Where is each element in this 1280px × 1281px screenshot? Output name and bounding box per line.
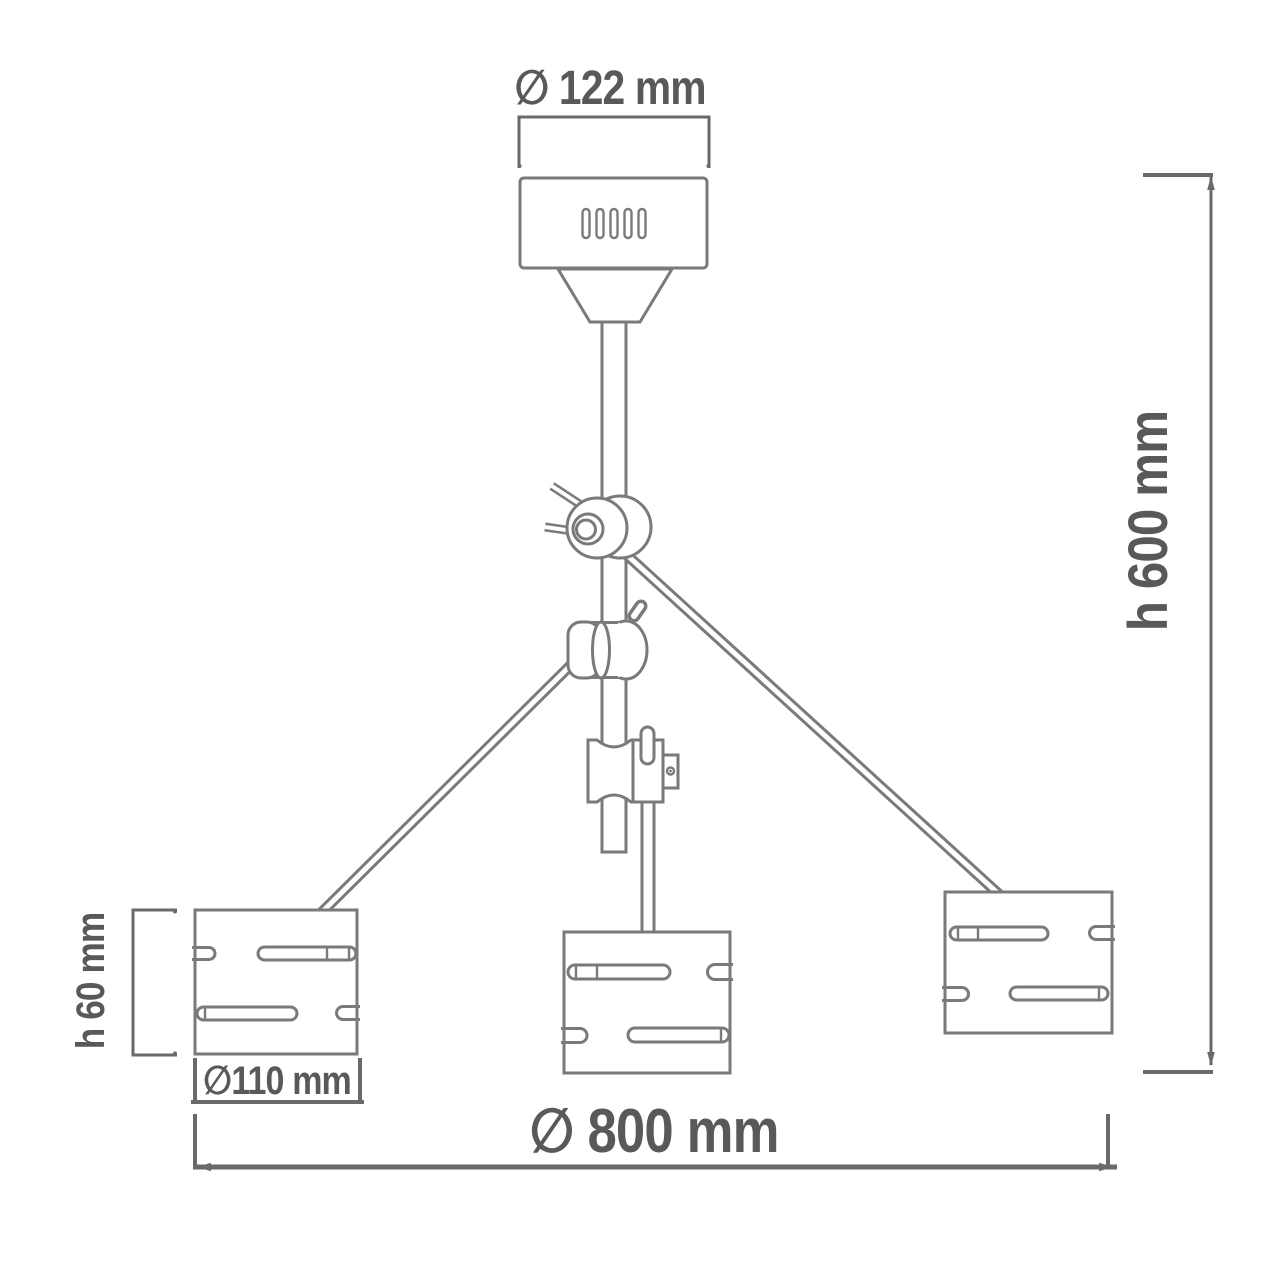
arrowhead-up [1207,176,1215,190]
clamp-left-block [588,740,633,802]
dimension-tick [173,910,177,914]
drawing-page: ∅ 122 mm [0,0,1280,1281]
dimension-tick [707,164,711,168]
left-arm [314,652,584,920]
canopy-cone [558,269,672,322]
shade-body [195,910,357,1054]
canopy-body [520,178,707,268]
joint-bore [577,520,596,539]
canopy-dimension-bracket [519,117,709,168]
middle-drop-rod [642,788,654,932]
dimension-canopy-diameter: ∅ 122 mm [514,62,710,168]
shade-height-label: h 60 mm [68,913,113,1050]
canopy-diameter-label: ∅ 122 mm [514,62,705,115]
bracket-screw-center [669,770,672,773]
shade-height-bracket [133,910,177,1055]
shade-body [945,892,1112,1033]
lamp-shade-left [192,910,360,1054]
clamp-pin [641,727,654,764]
shade-diameter-label: ∅110 mm [203,1057,351,1102]
arrowhead-left [197,1163,211,1171]
dimension-overall-width: ∅ 800 mm [193,1097,1117,1171]
shade-body [564,932,730,1073]
arrowhead-down [1207,1052,1215,1066]
ceiling-canopy [520,178,707,322]
lamp-shade-right [942,892,1115,1033]
dimension-shade-height: h 60 mm [68,910,177,1056]
lamp-technical-drawing: ∅ 122 mm [0,0,1280,1281]
dimension-tick [518,164,522,168]
joint-collar-rim [593,622,610,678]
overall-width-label: ∅ 800 mm [529,1097,778,1166]
dimension-overall-height: h 600 mm [1117,175,1215,1072]
right-arm-inner [606,536,1002,897]
upper-swivel-joint [545,486,651,558]
lamp-shade-middle [561,932,733,1073]
left-arm-inner [314,652,584,920]
right-arm [606,536,1002,897]
dimension-tick [173,1052,177,1056]
overall-height-label: h 600 mm [1117,411,1180,631]
dimension-shade-diameter: ∅110 mm [191,1057,364,1102]
